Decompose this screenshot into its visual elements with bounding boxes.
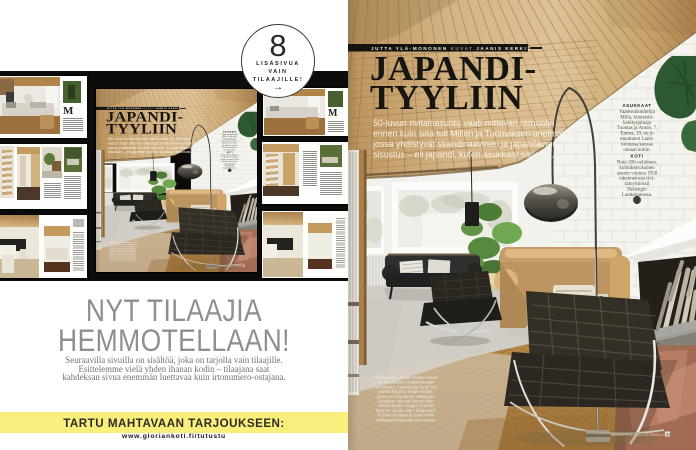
- svg-text:50-luvun rivitaloasunto vaati: 50-luvun rivitaloasunto vaati mittavan r…: [108, 137, 192, 141]
- svg-text:Emma, 19, on jo: Emma, 19, on jo: [620, 132, 654, 137]
- svg-text:kehitysjohtaja: kehitysjohtaja: [223, 138, 236, 140]
- svg-text:Milla, kiinteistö-: Milla, kiinteistö-: [620, 115, 654, 120]
- svg-text:81: 81: [666, 433, 670, 437]
- svg-text:50-luvun rivitaloasunto vaati: 50-luvun rivitaloasunto vaati mittavan r…: [373, 118, 555, 128]
- svg-text:rakennetussa rivi-: rakennetussa rivi-: [222, 161, 239, 163]
- svg-text:sisustus – eli japandi, kuten: sisustus – eli japandi, kuten asukkaat s…: [108, 150, 192, 154]
- svg-text:asunto vuonna 1958: asunto vuonna 1958: [617, 171, 658, 176]
- svg-text:MARRASKUU 2021 GLORIAN KOTI: MARRASKUU 2021 GLORIAN KOTI: [611, 433, 670, 437]
- svg-text:Lauttasaaressa.: Lauttasaaressa.: [622, 193, 652, 198]
- svg-text:rakennetussa rivi-: rakennetussa rivi-: [619, 177, 655, 182]
- svg-text:ASUKKAAT: ASUKKAAT: [622, 103, 651, 108]
- svg-text:kolmikerroksinen: kolmikerroksinen: [222, 157, 239, 159]
- svg-text:muuttanut Lumi-: muuttanut Lumi-: [222, 145, 238, 147]
- svg-text:Tuomas ja Anton, 7.: Tuomas ja Anton, 7.: [617, 126, 658, 131]
- svg-text:omaan kotiin.: omaan kotiin.: [223, 149, 236, 151]
- svg-text:koiransa kanssa: koiransa kanssa: [621, 142, 653, 147]
- svg-text:KOTI: KOTI: [631, 154, 644, 159]
- svg-text:Helsingin: Helsingin: [627, 188, 647, 193]
- svg-text:KOTI: KOTI: [227, 152, 233, 154]
- svg-text:sisustus – eli japandi, kuten: sisustus – eli japandi, kuten asukkaat s…: [373, 150, 554, 160]
- svg-text:Vaatesuunnittelija: Vaatesuunnittelija: [619, 110, 656, 115]
- svg-text:Emma, 19, on jo: Emma, 19, on jo: [222, 143, 237, 145]
- svg-text:muuttanut Lumi-: muuttanut Lumi-: [620, 137, 654, 142]
- svg-text:Lauttasaaressa.: Lauttasaaressa.: [223, 168, 237, 170]
- svg-text:ennen kuin siitä tuli Millan j: ennen kuin siitä tuli Millan ja Tuomakse…: [373, 129, 578, 139]
- svg-text:koiransa kanssa: koiransa kanssa: [222, 147, 236, 149]
- svg-text:kehitysjohtaja: kehitysjohtaja: [623, 121, 652, 126]
- svg-text:nahkaiset istuinosat Suomessa.: nahkaiset istuinosat Suomessa.: [376, 417, 436, 422]
- svg-text:ennen kuin siitä tuli Millan j: ennen kuin siitä tuli Millan ja Tuomakse…: [108, 142, 203, 146]
- svg-text:TYYLIIN: TYYLIIN: [370, 78, 523, 117]
- svg-text:omaan kotiin.: omaan kotiin.: [623, 148, 651, 153]
- svg-text:jossa yhdistyvät skandinaavine: jossa yhdistyvät skandinaavinen ja japan…: [372, 139, 557, 149]
- svg-text:jossa yhdistyvät skandinaavine: jossa yhdistyvät skandinaavinen ja japan…: [107, 146, 193, 150]
- svg-text:Vaatesuunnittelija: Vaatesuunnittelija: [221, 134, 237, 136]
- svg-text:taloyhtiössä: taloyhtiössä: [625, 182, 650, 187]
- svg-text:Noin 200-neliöinen,: Noin 200-neliöinen,: [617, 161, 657, 166]
- svg-text:kolmikerroksinen: kolmikerroksinen: [619, 166, 655, 171]
- svg-text:asunto vuonna 1958: asunto vuonna 1958: [220, 159, 238, 161]
- svg-text:TYYLIIN: TYYLIIN: [106, 121, 177, 137]
